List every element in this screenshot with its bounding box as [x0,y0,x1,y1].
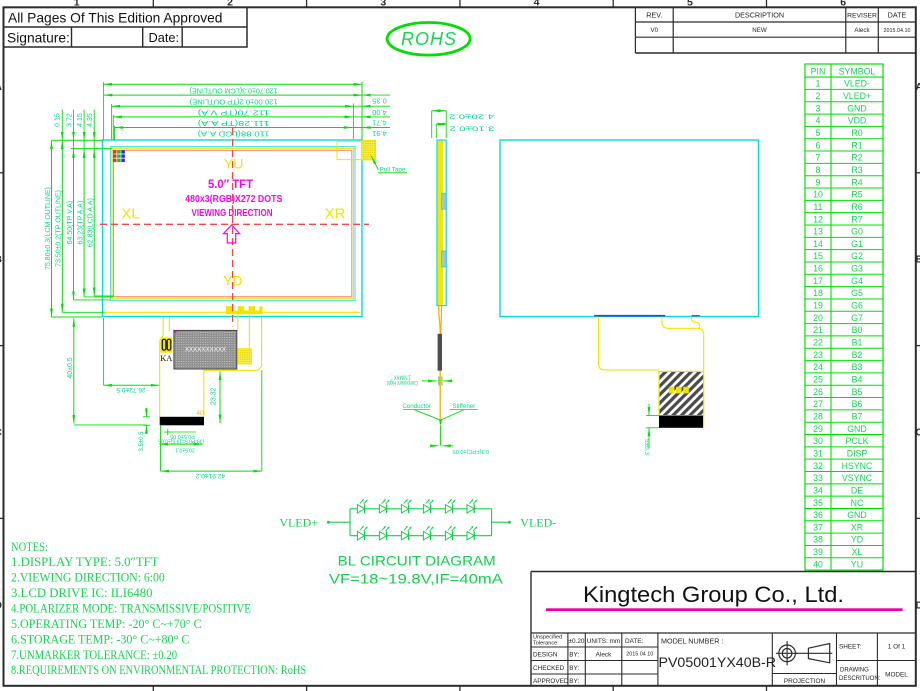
svg-text:5: 5 [816,128,821,138]
svg-text:2.VIEWING DIRECTION: 6:00: 2.VIEWING DIRECTION: 6:00 [11,571,165,585]
svg-text:35: 35 [813,498,823,508]
svg-text:G5: G5 [851,288,863,298]
svg-text:480x3(RGB)X272 DOTS: 480x3(RGB)X272 DOTS [185,194,282,205]
svg-text:R1: R1 [851,140,862,150]
svg-text:G1: G1 [851,239,863,249]
svg-text:14: 14 [813,239,823,249]
svg-text:B4: B4 [852,375,863,385]
svg-text:REVISER: REVISER [847,12,877,19]
svg-text:HSYNC: HSYNC [842,461,873,471]
svg-text:4.15: 4.15 [77,113,84,127]
svg-text:75.80±0.3(LCM OUTLINE): 75.80±0.3(LCM OUTLINE) [45,187,52,270]
svg-text:8: 8 [816,165,821,175]
svg-text:DESCRIPTION: DESCRIPTION [735,10,784,19]
svg-text:4.35: 4.35 [87,113,94,127]
svg-text:4.91: 4.91 [372,129,387,136]
svg-text:1: 1 [816,79,821,89]
svg-text:(39-P0.5=19.5)±0.05: (39-P0.5=19.5)±0.05 [158,438,204,444]
svg-text:3.10±0.2: 3.10±0.2 [449,125,495,132]
svg-text:21: 21 [813,325,823,335]
svg-text:V0: V0 [651,27,659,34]
svg-text:±0.20: ±0.20 [569,638,585,645]
svg-text:27: 27 [813,399,823,409]
svg-text:6: 6 [840,0,846,9]
svg-text:18: 18 [813,288,823,298]
svg-text:7: 7 [816,153,821,163]
svg-text:Date:: Date: [149,30,180,45]
svg-text:37: 37 [813,522,823,532]
svg-text:2: 2 [816,91,821,101]
svg-text:3: 3 [380,0,386,9]
svg-text:XXXXXXXXXX: XXXXXXXXXX [185,347,226,354]
svg-text:13: 13 [813,227,823,237]
svg-text:G2: G2 [851,251,863,261]
svg-text:8.REQUIREMENTS ON ENVIRONMENTA: 8.REQUIREMENTS ON ENVIRONMENTAL PROTECTI… [11,663,306,677]
svg-text:5.0″ TFT: 5.0″ TFT [208,179,253,191]
svg-text:R7: R7 [851,214,862,224]
svg-text:D: D [0,599,2,611]
svg-text:5: 5 [687,0,693,9]
svg-text:Signature:: Signature: [7,30,70,45]
svg-text:APPROVED: APPROVED [533,678,569,685]
svg-text:BY:: BY: [569,652,579,659]
svg-text:111.28(TP A.A): 111.28(TP A.A) [198,119,270,126]
svg-text:XL: XL [852,547,863,557]
svg-text:YD: YD [223,273,242,289]
svg-text:VDD: VDD [848,116,867,126]
svg-text:SHEET:: SHEET: [839,644,862,651]
svg-text:VF=18~19.8V,IF=40mA: VF=18~19.8V,IF=40mA [329,572,504,587]
svg-text:30: 30 [813,436,823,446]
svg-text:Conductor: Conductor [402,403,431,410]
svg-text:R4: R4 [851,177,862,187]
svg-text:33: 33 [813,473,823,483]
svg-text:Kingtech Group Co., Ltd.: Kingtech Group Co., Ltd. [583,582,844,607]
svg-text:2015.04.10: 2015.04.10 [884,28,911,34]
svg-text:B1: B1 [852,338,863,348]
svg-text:A: A [0,81,2,93]
svg-text:C: C [915,427,920,439]
svg-text:B0: B0 [852,325,863,335]
svg-text:11: 11 [813,202,822,212]
svg-text:DRAWING: DRAWING [840,668,869,674]
svg-text:20: 20 [813,313,823,323]
svg-text:SYMBOL: SYMBOL [839,66,876,76]
svg-text:R3: R3 [851,165,862,175]
svg-text:120.00±0.2(TP OUTLINE): 120.00±0.2(TP OUTLINE) [190,97,278,104]
svg-text:B6: B6 [852,399,863,409]
svg-text:G4: G4 [851,276,863,286]
svg-text:4.71: 4.71 [372,118,387,125]
svg-text:VIEWING DIRECTION: VIEWING DIRECTION [192,208,273,219]
svg-text:25: 25 [813,375,823,385]
svg-text:7.UNMARKER TOLERANCE: ±0.20: 7.UNMARKER TOLERANCE: ±0.20 [11,648,177,662]
svg-text:15: 15 [813,251,823,261]
svg-text:62.83(LCD A.A): 62.83(LCD A.A) [88,198,95,247]
svg-text:0.3(FPC)±0.05: 0.3(FPC)±0.05 [453,448,490,454]
svg-text:26: 26 [813,387,823,397]
svg-text:5±0.3: 5±0.3 [643,439,650,455]
svg-text:DE: DE [851,485,863,495]
svg-text:29: 29 [813,424,823,434]
svg-text:NEW: NEW [752,27,767,34]
svg-text:Tolerance:: Tolerance: [533,641,559,647]
svg-text:4.20±0.2: 4.20±0.2 [448,112,494,119]
svg-text:B3: B3 [852,362,863,372]
svg-text:23: 23 [813,350,823,360]
svg-text:39: 39 [813,547,823,557]
svg-text:DATE:: DATE: [625,638,644,645]
svg-text:DESIGN: DESIGN [533,652,558,659]
svg-text:G3: G3 [851,264,863,274]
svg-text:A: A [915,81,920,93]
svg-text:VLED-: VLED- [520,515,556,529]
svg-text:Aleck: Aleck [854,27,870,34]
svg-text:NC: NC [851,498,864,508]
svg-text:0.15: 0.15 [55,113,62,127]
svg-text:YU: YU [851,559,863,569]
svg-text:38: 38 [813,535,823,545]
svg-text:XR: XR [325,206,346,223]
svg-text:2015 04 10: 2015 04 10 [626,652,653,658]
svg-text:Stiffener: Stiffener [452,403,475,410]
svg-text:C: C [0,427,2,439]
svg-text:BL CIRCUIT DIAGRAM: BL CIRCUIT DIAGRAM [338,554,496,569]
svg-text:GND: GND [847,103,867,113]
svg-text:ROHS: ROHS [401,29,457,49]
svg-text:DISP: DISP [847,449,868,459]
svg-text:32: 32 [813,461,823,471]
svg-text:36: 36 [813,510,823,520]
svg-text:GND: GND [847,510,867,520]
svg-text:XL: XL [121,206,139,223]
svg-text:PCLK: PCLK [846,436,869,446]
svg-text:B: B [0,254,2,266]
svg-text:23.32: 23.32 [210,387,217,405]
svg-text:3.LCD DRIVE IC: ILI6480: 3.LCD DRIVE IC: ILI6480 [11,586,153,600]
svg-text:10: 10 [813,190,823,200]
svg-text:YD: YD [851,535,863,545]
svg-text:1.DISPLAY TYPE: 5.0″TFT: 1.DISPLAY TYPE: 5.0″TFT [11,555,159,569]
svg-text:24: 24 [813,362,823,372]
svg-text:XR: XR [851,522,863,532]
svg-text:KA: KA [160,354,172,363]
svg-text:16: 16 [813,264,823,274]
svg-text:17: 17 [813,276,823,286]
svg-text:110.88(LCD A.A): 110.88(LCD A.A) [198,130,270,137]
svg-text:1 Of 1: 1 Of 1 [888,644,906,651]
svg-text:73.50±0.2(TP OUTLINE): 73.50±0.2(TP OUTLINE) [56,190,63,267]
svg-text:Pull Tape: Pull Tape [380,166,406,173]
svg-text:BY:: BY: [569,678,579,685]
svg-text:Aleck: Aleck [596,652,612,659]
svg-text:5.OPERATING TEMP: -20° C~+70°: 5.OPERATING TEMP: -20° C~+70° C [11,617,202,631]
svg-text:PROJECTION: PROJECTION [784,678,826,685]
svg-text:40: 40 [196,410,204,417]
svg-text:MODEL: MODEL [885,672,908,679]
svg-text:22: 22 [813,338,823,348]
svg-text:R5: R5 [851,190,862,200]
svg-text:VLED-: VLED- [844,79,870,89]
svg-text:R6: R6 [851,202,862,212]
svg-text:VSYNC: VSYNC [842,473,873,483]
svg-text:YU: YU [224,156,243,172]
svg-text:PIN: PIN [811,66,826,76]
svg-text:CHECKED: CHECKED [533,665,565,672]
svg-text:4.POLARIZER MODE: TRANSMISSIVE: 4.POLARIZER MODE: TRANSMISSIVE/POSITIVE [11,602,251,616]
svg-text:112.70(TP V.A): 112.70(TP V.A) [198,108,270,115]
svg-text:4: 4 [816,116,821,126]
svg-text:9: 9 [816,177,821,187]
svg-text:REV.: REV. [646,10,662,19]
svg-text:4.00: 4.00 [372,108,387,115]
svg-text:G0: G0 [851,227,863,237]
svg-text:20.5±0.1: 20.5±0.1 [175,446,195,452]
svg-text:6.STORAGE TEMP: -30° C~+80° C: 6.STORAGE TEMP: -30° C~+80° C [11,632,189,646]
svg-text:NOTES:: NOTES: [11,540,48,554]
svg-text:VLED+: VLED+ [279,515,318,529]
svg-text:19: 19 [813,301,823,311]
svg-text:B: B [915,254,920,266]
svg-text:GND: GND [847,424,867,434]
svg-text:PV05001YX40B-R: PV05001YX40B-R [659,655,777,671]
svg-text:R2: R2 [851,153,862,163]
svg-text:4: 4 [534,0,540,9]
svg-text:120.70±0.3(LCM OUTLINE): 120.70±0.3(LCM OUTLINE) [190,86,278,93]
svg-text:28: 28 [813,412,823,422]
svg-text:B5: B5 [852,387,863,397]
svg-text:G7: G7 [851,313,863,323]
svg-text:DESCRITUON:: DESCRITUON: [839,676,881,682]
svg-text:D: D [915,599,920,611]
svg-text:31: 31 [813,449,823,459]
svg-text:1.50MAX: 1.50MAX [394,374,411,380]
svg-text:42.91±0.2: 42.91±0.2 [196,472,226,479]
svg-text:UNITS: mm: UNITS: mm [587,638,620,645]
svg-text:R0: R0 [851,128,862,138]
svg-text:12: 12 [813,214,823,224]
svg-text:MODEL NUMBER :: MODEL NUMBER : [661,637,723,646]
svg-text:3.72: 3.72 [66,113,73,127]
svg-text:BY:: BY: [569,665,579,672]
svg-text:34: 34 [813,485,823,495]
svg-text:3: 3 [816,103,821,113]
svg-text:All Pages Of This Edition Appr: All Pages Of This Edition Approved [8,10,223,25]
svg-text:G6: G6 [851,301,863,311]
svg-text:B2: B2 [852,350,863,360]
svg-text:63.23(TP A.A): 63.23(TP A.A) [78,201,85,245]
svg-text:B7: B7 [852,412,863,422]
svg-text:40±0.5: 40±0.5 [67,357,74,378]
svg-text:VLED+: VLED+ [843,91,871,101]
svg-text:0.35: 0.35 [372,97,387,104]
svg-text:3.5±0.5: 3.5±0.5 [139,431,145,452]
svg-text:26.72±0.5: 26.72±0.5 [116,386,146,393]
svg-text:40: 40 [813,559,823,569]
svg-text:DATE: DATE [888,10,907,19]
svg-text:64.50(TP V.A): 64.50(TP V.A) [67,201,74,245]
svg-text:6: 6 [816,140,821,150]
